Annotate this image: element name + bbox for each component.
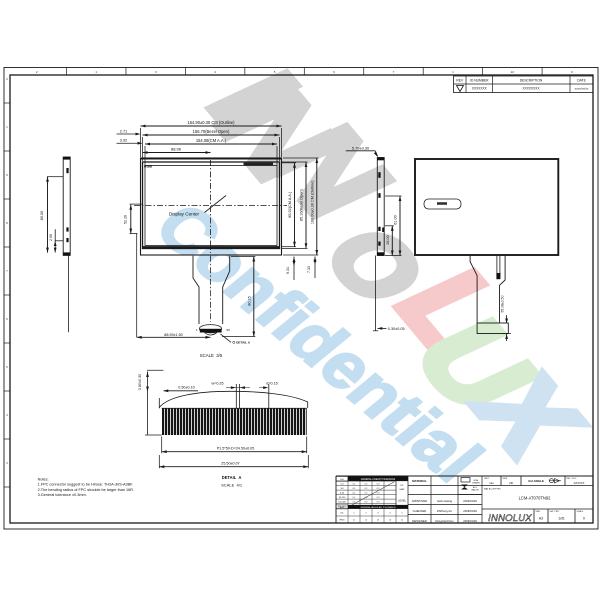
svg-text:LCM-AT070TN92: LCM-AT070TN92 <box>519 496 551 501</box>
svg-text:52.26: 52.26 <box>124 215 128 224</box>
svg-text:mm: mm <box>489 481 494 485</box>
svg-text:28.00: 28.00 <box>386 235 390 245</box>
svg-text:3.92: 3.92 <box>120 138 128 143</box>
svg-text:DATE: DATE <box>577 79 586 83</box>
svg-text:1: 1 <box>6 125 8 129</box>
svg-text:APPROVED: APPROVED <box>412 499 428 503</box>
svg-text:ANG: ANG <box>340 506 345 509</box>
svg-text:±5: ±5 <box>401 520 404 522</box>
svg-text:5: 5 <box>6 365 8 369</box>
svg-text:3rd ANGLE: 3rd ANGLE <box>528 479 544 483</box>
svg-text:CHECKED: CHECKED <box>413 509 427 513</box>
svg-text:0: 0 <box>583 517 585 521</box>
svg-text:±3: ±3 <box>377 520 380 522</box>
svg-text:85.10(Bezel Open): 85.10(Bezel Open) <box>300 189 304 222</box>
svg-text:2: 2 <box>365 513 367 515</box>
svg-text:2: 2 <box>6 77 8 81</box>
svg-text:INNOLUX: INNOLUX <box>488 513 532 524</box>
svg-text:ID NUMBER: ID NUMBER <box>470 79 489 83</box>
svg-text:±1: ±1 <box>353 520 356 522</box>
svg-text:xxxx/xx/xx: xxxx/xx/xx <box>575 87 589 91</box>
svg-text:LEVEL: LEVEL <box>398 499 407 503</box>
svg-text:5: 5 <box>274 70 276 74</box>
svg-text:LVL: LVL <box>340 513 345 515</box>
svg-text:2009/01/09: 2009/01/09 <box>463 519 477 523</box>
svg-text:UNIT: UNIT <box>484 478 490 480</box>
svg-text:Jack.Huang: Jack.Huang <box>437 499 453 503</box>
svg-text:GENERAL LINEAR TOLERANCE: GENERAL LINEAR TOLERANCE <box>361 478 396 481</box>
svg-text:AXXXXX: AXXXXX <box>574 481 585 485</box>
svg-text:8: 8 <box>6 221 8 225</box>
svg-text:154.08(CM A.A.): 154.08(CM A.A.) <box>196 138 227 143</box>
svg-text:4: 4 <box>214 70 216 74</box>
svg-text:MAT ACCEPTED: MAT ACCEPTED <box>484 487 501 490</box>
svg-text:9: 9 <box>6 173 8 177</box>
svg-text:4: 4 <box>389 513 391 515</box>
svg-text:9: 9 <box>571 70 573 74</box>
svg-text:6: 6 <box>6 317 8 321</box>
svg-text:SIZE: SIZE <box>503 478 508 480</box>
svg-text:2.00: 2.00 <box>49 234 53 241</box>
svg-text:DESIGNED: DESIGNED <box>412 519 427 523</box>
svg-text:DETAIL A: DETAIL A <box>236 341 251 345</box>
svg-text:SCAL: SCAL <box>473 479 479 482</box>
svg-text:2009/01/09: 2009/01/09 <box>463 499 477 503</box>
svg-text:80.15: 80.15 <box>248 296 252 306</box>
svg-text:3.80±0.30: 3.80±0.30 <box>138 374 142 390</box>
svg-text:DRAWN: DRAWN <box>472 482 480 485</box>
svg-text:156.70(Bezel Open): 156.70(Bezel Open) <box>193 129 230 134</box>
svg-text:61.00: 61.00 <box>394 215 398 225</box>
svg-text:1: 1 <box>196 328 198 332</box>
svg-text:30-120: 30-120 <box>339 497 346 499</box>
svg-text:22: 22 <box>511 70 515 74</box>
svg-text:d=0.15: d=0.15 <box>266 381 277 385</box>
svg-text:±2: ±2 <box>365 520 368 522</box>
svg-text:P1.5*50-D=24.50±0.05: P1.5*50-D=24.50±0.05 <box>217 447 255 451</box>
svg-text:ACL: ACL <box>473 486 478 489</box>
svg-text:A3: A3 <box>539 517 543 521</box>
svg-text:3: 3 <box>155 70 157 74</box>
svg-text:55.08±0.50: 55.08±0.50 <box>501 295 505 312</box>
svg-text:2.The bending radius of FPC sh: 2.The bending radius of FPC shoulde be l… <box>38 488 134 492</box>
svg-text:MAX: MAX <box>400 488 405 491</box>
svg-text:MATERIAL: MATERIAL <box>412 479 427 483</box>
svg-text:1: 1 <box>95 70 97 74</box>
svg-text:2009/01/09: 2009/01/09 <box>463 509 477 513</box>
svg-text:7.33: 7.33 <box>307 266 311 273</box>
svg-text:3: 3 <box>377 513 379 515</box>
svg-text:1: 1 <box>353 513 355 515</box>
svg-text:S-E: S-E <box>340 479 344 481</box>
svg-text:164.90±0.30 CM (Outline): 164.90±0.30 CM (Outline) <box>187 120 235 125</box>
svg-text:4: 4 <box>6 413 8 417</box>
svg-text:w=0.35: w=0.35 <box>212 381 224 385</box>
svg-text:DETAIL A: DETAIL A <box>222 475 242 480</box>
svg-text:2D: 2D <box>509 481 514 485</box>
svg-text:9.31: 9.31 <box>286 267 290 274</box>
svg-text:100.00±0.30 CM (Outline): 100.00±0.30 CM (Outline) <box>311 180 315 224</box>
svg-text:XXXXXXXX: XXXXXXXX <box>522 87 540 91</box>
svg-text:SCALE: SCALE <box>577 510 584 513</box>
svg-text:SHT CTRL: SHT CTRL <box>550 511 561 513</box>
svg-text:5.70±0.30: 5.70±0.30 <box>352 145 370 150</box>
svg-text:GENERAL ANGULAR TOLERANCE: GENERAL ANGULAR TOLERANCE <box>360 506 396 509</box>
svg-text:Notes:: Notes: <box>38 477 49 481</box>
svg-text:SCALE 3/5: SCALE 3/5 <box>200 353 223 358</box>
svg-text:DESCRIPTION: DESCRIPTION <box>520 79 543 83</box>
svg-text:SIZE: SIZE <box>536 511 541 513</box>
svg-text:6: 6 <box>333 70 335 74</box>
svg-text:DongshanChen: DongshanChen <box>435 519 454 523</box>
svg-text:±4: ±4 <box>389 520 392 522</box>
svg-text:2: 2 <box>36 70 38 74</box>
svg-text:25.50±0.07: 25.50±0.07 <box>221 462 239 466</box>
svg-text:Display Center: Display Center <box>169 211 200 216</box>
svg-text:ZhiPeng.Fu: ZhiPeng.Fu <box>437 509 452 513</box>
svg-text:1: 1 <box>452 70 454 74</box>
svg-text:1of1: 1of1 <box>558 517 565 521</box>
svg-text:SCALE 4/1: SCALE 4/1 <box>221 482 243 487</box>
svg-text:WALGN: WALGN <box>471 489 479 492</box>
svg-text:0.30±0.05: 0.30±0.05 <box>388 327 405 331</box>
svg-text:XXXXXXX: XXXXXXX <box>472 87 488 91</box>
svg-text:50: 50 <box>227 328 231 332</box>
svg-text:7: 7 <box>393 70 395 74</box>
svg-text:1.FPC connector suggest to be: 1.FPC connector suggest to be Hirose: TH… <box>38 483 134 487</box>
svg-text:88.95±1.50: 88.95±1.50 <box>164 333 182 337</box>
svg-text:85.92(CM A.A.): 85.92(CM A.A.) <box>288 191 292 218</box>
svg-text:REL. DOC: REL. DOC <box>567 478 577 480</box>
svg-text:3: 3 <box>6 461 8 465</box>
svg-text:LVL: LVL <box>400 485 405 487</box>
svg-text:88.96: 88.96 <box>171 147 182 152</box>
svg-text:5: 5 <box>401 513 403 515</box>
svg-text:RGB: RGB <box>144 165 152 169</box>
svg-text:RNG: RNG <box>340 520 345 522</box>
svg-text:0.50±0.10: 0.50±0.10 <box>178 385 194 389</box>
svg-text:80.00: 80.00 <box>40 211 44 221</box>
svg-text:REV: REV <box>456 79 464 83</box>
svg-text:7: 7 <box>6 269 8 273</box>
svg-text:120-400: 120-400 <box>338 502 346 504</box>
svg-text:3.General tolerance ±0.3mm.: 3.General tolerance ±0.3mm. <box>38 493 87 497</box>
svg-text:2.71: 2.71 <box>120 129 128 134</box>
